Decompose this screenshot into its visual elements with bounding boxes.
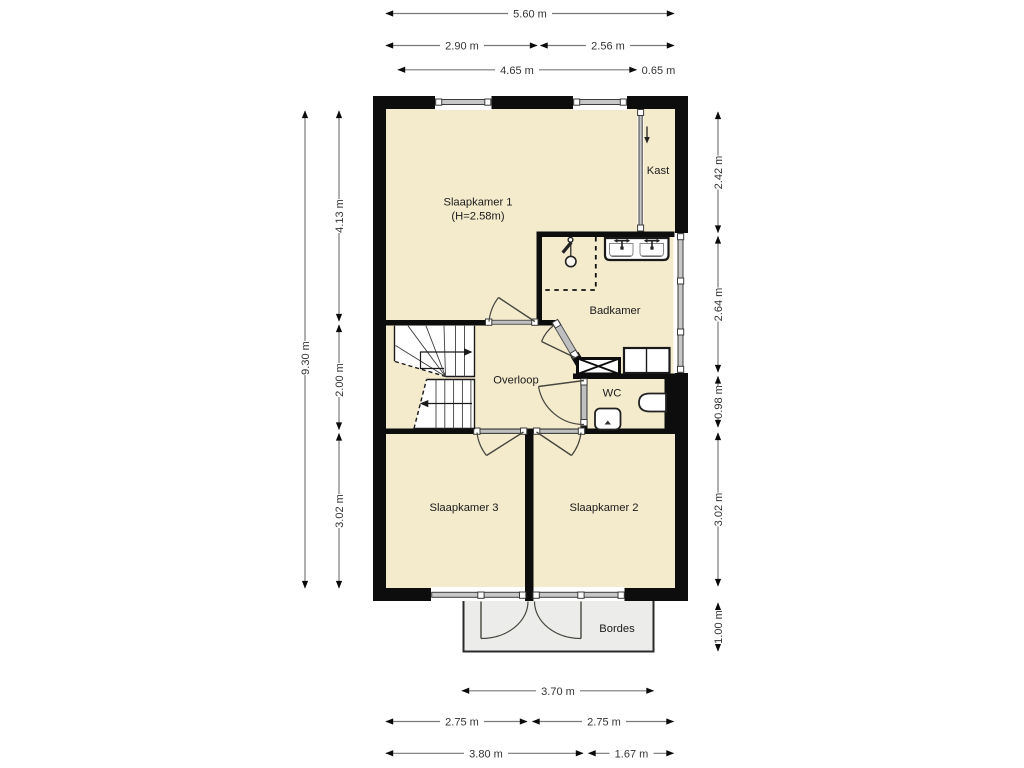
svg-text:(H=2.58m): (H=2.58m) <box>451 211 504 223</box>
svg-text:2.42 m: 2.42 m <box>713 156 725 190</box>
svg-text:Bordes: Bordes <box>599 623 635 635</box>
svg-text:2.00 m: 2.00 m <box>334 363 346 397</box>
svg-text:5.60 m: 5.60 m <box>513 9 547 21</box>
svg-text:0.98 m: 0.98 m <box>713 385 725 419</box>
svg-text:3.02 m: 3.02 m <box>334 494 346 528</box>
svg-text:3.02 m: 3.02 m <box>713 493 725 527</box>
svg-text:1.00 m: 1.00 m <box>713 610 725 644</box>
svg-text:9.30 m: 9.30 m <box>300 341 312 375</box>
svg-text:2.90 m: 2.90 m <box>445 41 479 53</box>
svg-text:Slaapkamer 3: Slaapkamer 3 <box>429 502 498 514</box>
svg-text:3.80 m: 3.80 m <box>469 748 503 760</box>
svg-text:Slaapkamer 1: Slaapkamer 1 <box>443 197 512 209</box>
svg-text:Slaapkamer 2: Slaapkamer 2 <box>569 502 638 514</box>
svg-text:4.13 m: 4.13 m <box>334 199 346 233</box>
svg-text:Kast: Kast <box>647 165 670 177</box>
svg-text:2.75 m: 2.75 m <box>587 717 621 729</box>
svg-text:3.70 m: 3.70 m <box>541 686 575 698</box>
svg-text:WC: WC <box>603 388 622 400</box>
svg-text:2.64 m: 2.64 m <box>713 288 725 322</box>
svg-text:Overloop: Overloop <box>493 375 538 387</box>
svg-text:2.56 m: 2.56 m <box>591 41 625 53</box>
svg-text:4.65 m: 4.65 m <box>500 65 534 77</box>
svg-text:1.67 m: 1.67 m <box>615 748 649 760</box>
svg-text:Badkamer: Badkamer <box>590 305 641 317</box>
svg-text:2.75 m: 2.75 m <box>445 717 479 729</box>
svg-text:0.65 m: 0.65 m <box>642 65 676 77</box>
